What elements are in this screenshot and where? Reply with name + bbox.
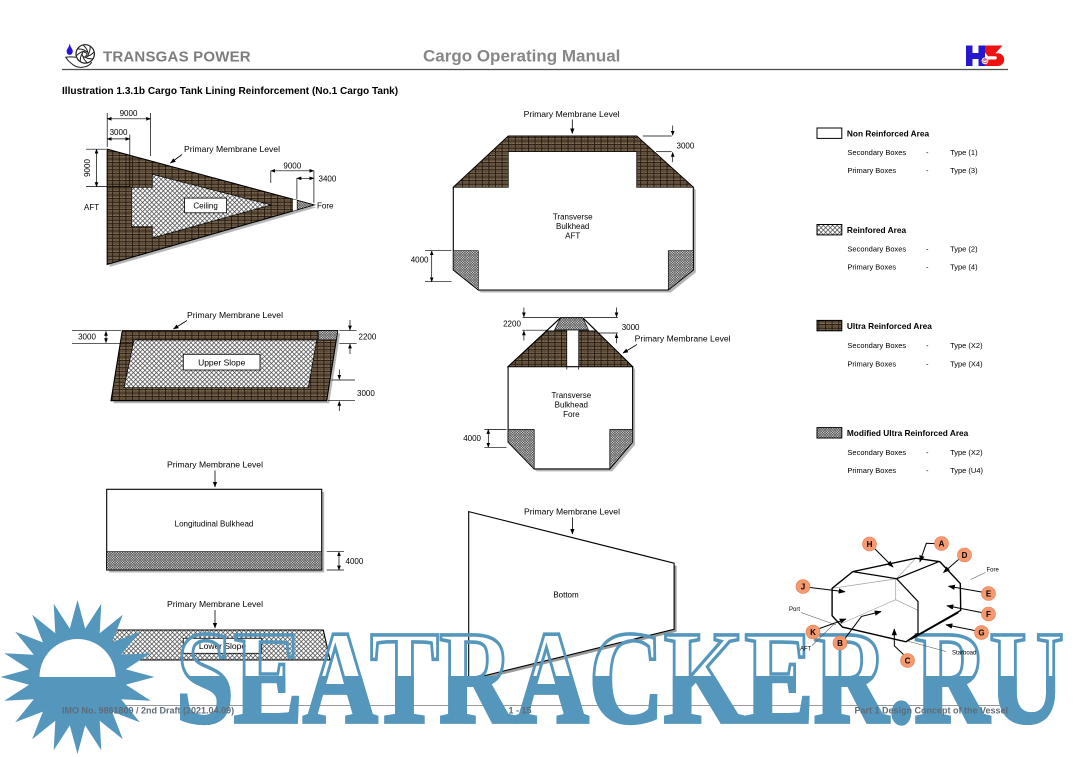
svg-text:Primary Membrane Level: Primary Membrane Level	[187, 310, 283, 320]
svg-text:D: D	[962, 551, 968, 560]
svg-text:Part 1 Design Concept of the V: Part 1 Design Concept of the Vessel	[854, 706, 1008, 716]
svg-text:Type (3): Type (3)	[950, 166, 978, 175]
svg-text:B: B	[837, 639, 843, 648]
svg-text:Primary Boxes: Primary Boxes	[847, 263, 896, 272]
svg-text:Type (X2): Type (X2)	[950, 341, 983, 350]
svg-text:Primary Boxes: Primary Boxes	[847, 359, 896, 368]
svg-text:3000: 3000	[622, 323, 640, 332]
svg-text:IMO No. 9861809 / 2nd Draft (2: IMO No. 9861809 / 2nd Draft (2021.04.09)	[62, 706, 234, 716]
svg-text:Secondary Boxes: Secondary Boxes	[847, 245, 906, 254]
svg-text:Transverse: Transverse	[553, 213, 593, 222]
svg-text:Primary Membrane Level: Primary Membrane Level	[635, 334, 731, 344]
svg-text:Port: Port	[789, 607, 800, 613]
svg-text:Primary Membrane Level: Primary Membrane Level	[184, 144, 280, 154]
svg-text:Primary Membrane Level: Primary Membrane Level	[167, 459, 263, 469]
svg-text:3000: 3000	[110, 128, 128, 137]
svg-text:9000: 9000	[83, 159, 92, 177]
svg-text:Fore: Fore	[563, 410, 580, 419]
svg-text:Type (U4): Type (U4)	[950, 466, 983, 475]
svg-text:K: K	[810, 628, 816, 637]
svg-text:4000: 4000	[463, 434, 481, 443]
svg-text:Bulkhead: Bulkhead	[555, 401, 588, 410]
svg-text:4000: 4000	[346, 557, 364, 566]
svg-text:Illustration 1.3.1b Cargo Tank: Illustration 1.3.1b Cargo Tank Lining Re…	[62, 86, 398, 97]
svg-text:Ceiling: Ceiling	[193, 201, 217, 210]
svg-text:Cargo Operating Manual: Cargo Operating Manual	[423, 47, 620, 66]
svg-text:Longitudinal Bulkhead: Longitudinal Bulkhead	[175, 520, 254, 529]
svg-text:Fore: Fore	[317, 202, 334, 211]
svg-text:9000: 9000	[120, 109, 138, 118]
svg-text:A: A	[939, 540, 945, 549]
svg-text:Primary Boxes: Primary Boxes	[847, 166, 896, 175]
svg-text:Modified Ultra Reinforced Area: Modified Ultra Reinforced Area	[847, 428, 969, 438]
svg-text:Secondary Boxes: Secondary Boxes	[847, 448, 906, 457]
svg-text:C: C	[905, 657, 911, 666]
svg-text:Type (X2): Type (X2)	[950, 448, 983, 457]
svg-text:J: J	[801, 583, 805, 592]
svg-text:Primary Membrane Level: Primary Membrane Level	[524, 507, 620, 517]
svg-text:Secondary Boxes: Secondary Boxes	[847, 341, 906, 350]
svg-text:AFT: AFT	[84, 203, 99, 212]
svg-text:Upper Slope: Upper Slope	[198, 357, 246, 367]
svg-text:Non Reinforced Area: Non Reinforced Area	[847, 129, 930, 139]
svg-text:AFT: AFT	[565, 232, 580, 241]
svg-text:Reinfored Area: Reinfored Area	[847, 225, 907, 235]
svg-text:9000: 9000	[283, 162, 301, 171]
svg-text:2200: 2200	[503, 320, 521, 329]
svg-text:Type (X4): Type (X4)	[950, 359, 983, 368]
svg-text:3000: 3000	[677, 142, 695, 151]
svg-text:E: E	[986, 590, 992, 599]
svg-text:Bulkhead: Bulkhead	[556, 222, 589, 231]
svg-text:F: F	[986, 610, 991, 619]
svg-text:3000: 3000	[78, 333, 96, 342]
svg-text:1 - 15: 1 - 15	[508, 706, 531, 716]
svg-text:Fore: Fore	[987, 568, 1000, 574]
svg-text:Primary Boxes: Primary Boxes	[847, 466, 896, 475]
svg-text:Bottom: Bottom	[553, 591, 579, 600]
svg-text:Secondary Boxes: Secondary Boxes	[847, 148, 906, 157]
svg-text:G: G	[978, 629, 984, 638]
svg-text:Transverse: Transverse	[551, 391, 591, 400]
svg-text:TRANSGAS POWER: TRANSGAS POWER	[103, 49, 251, 66]
svg-text:H: H	[867, 540, 873, 549]
svg-text:Primary Membrane Level: Primary Membrane Level	[524, 109, 620, 119]
svg-text:AFT: AFT	[800, 647, 812, 653]
svg-text:Type (1): Type (1)	[950, 148, 978, 157]
svg-text:3000: 3000	[357, 389, 375, 398]
svg-text:2200: 2200	[359, 333, 377, 342]
svg-text:Ultra Reinforced Area: Ultra Reinforced Area	[847, 321, 932, 331]
svg-text:Starboad: Starboad	[952, 651, 976, 657]
svg-text:4000: 4000	[411, 256, 429, 265]
svg-text:Type (2): Type (2)	[950, 245, 978, 254]
svg-text:Type (4): Type (4)	[950, 263, 978, 272]
svg-text:3400: 3400	[319, 175, 337, 184]
